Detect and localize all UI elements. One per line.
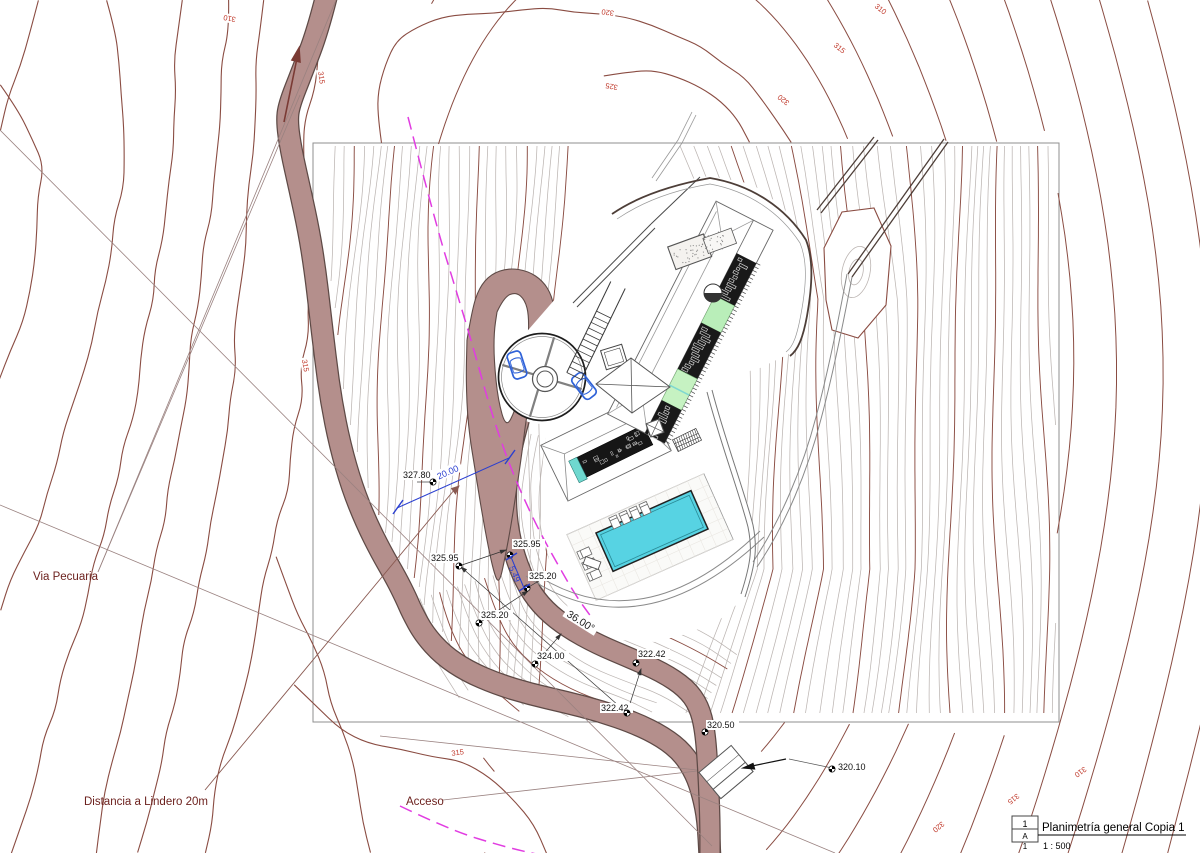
svg-text:Via Pecuaria: Via Pecuaria [33,571,99,583]
svg-text:1: 1 [1023,842,1028,851]
svg-text:322.42: 322.42 [601,703,629,713]
svg-text:315: 315 [451,747,465,758]
svg-text:325.95: 325.95 [513,539,541,549]
svg-text:1: 1 [1022,819,1027,829]
svg-text:327.80: 327.80 [403,470,431,480]
svg-text:310: 310 [223,13,237,24]
svg-text:325.20: 325.20 [481,610,509,620]
svg-text:320.50: 320.50 [707,720,735,730]
svg-text:Acceso: Acceso [406,796,444,808]
svg-text:324.00: 324.00 [537,651,565,661]
svg-text:320: 320 [601,7,615,18]
svg-text:315: 315 [316,71,327,85]
svg-text:Planimetría general Copia 1: Planimetría general Copia 1 [1042,822,1185,834]
svg-text:A: A [1022,832,1028,841]
svg-text:1 : 500: 1 : 500 [1043,841,1071,851]
svg-text:Distancia a Lindero 20m: Distancia a Lindero 20m [84,796,208,808]
svg-text:325: 325 [605,81,619,92]
svg-text:320.10: 320.10 [838,762,866,772]
svg-text:325.20: 325.20 [529,571,557,581]
svg-text:322.42: 322.42 [638,649,666,659]
svg-text:325.95: 325.95 [431,553,459,563]
